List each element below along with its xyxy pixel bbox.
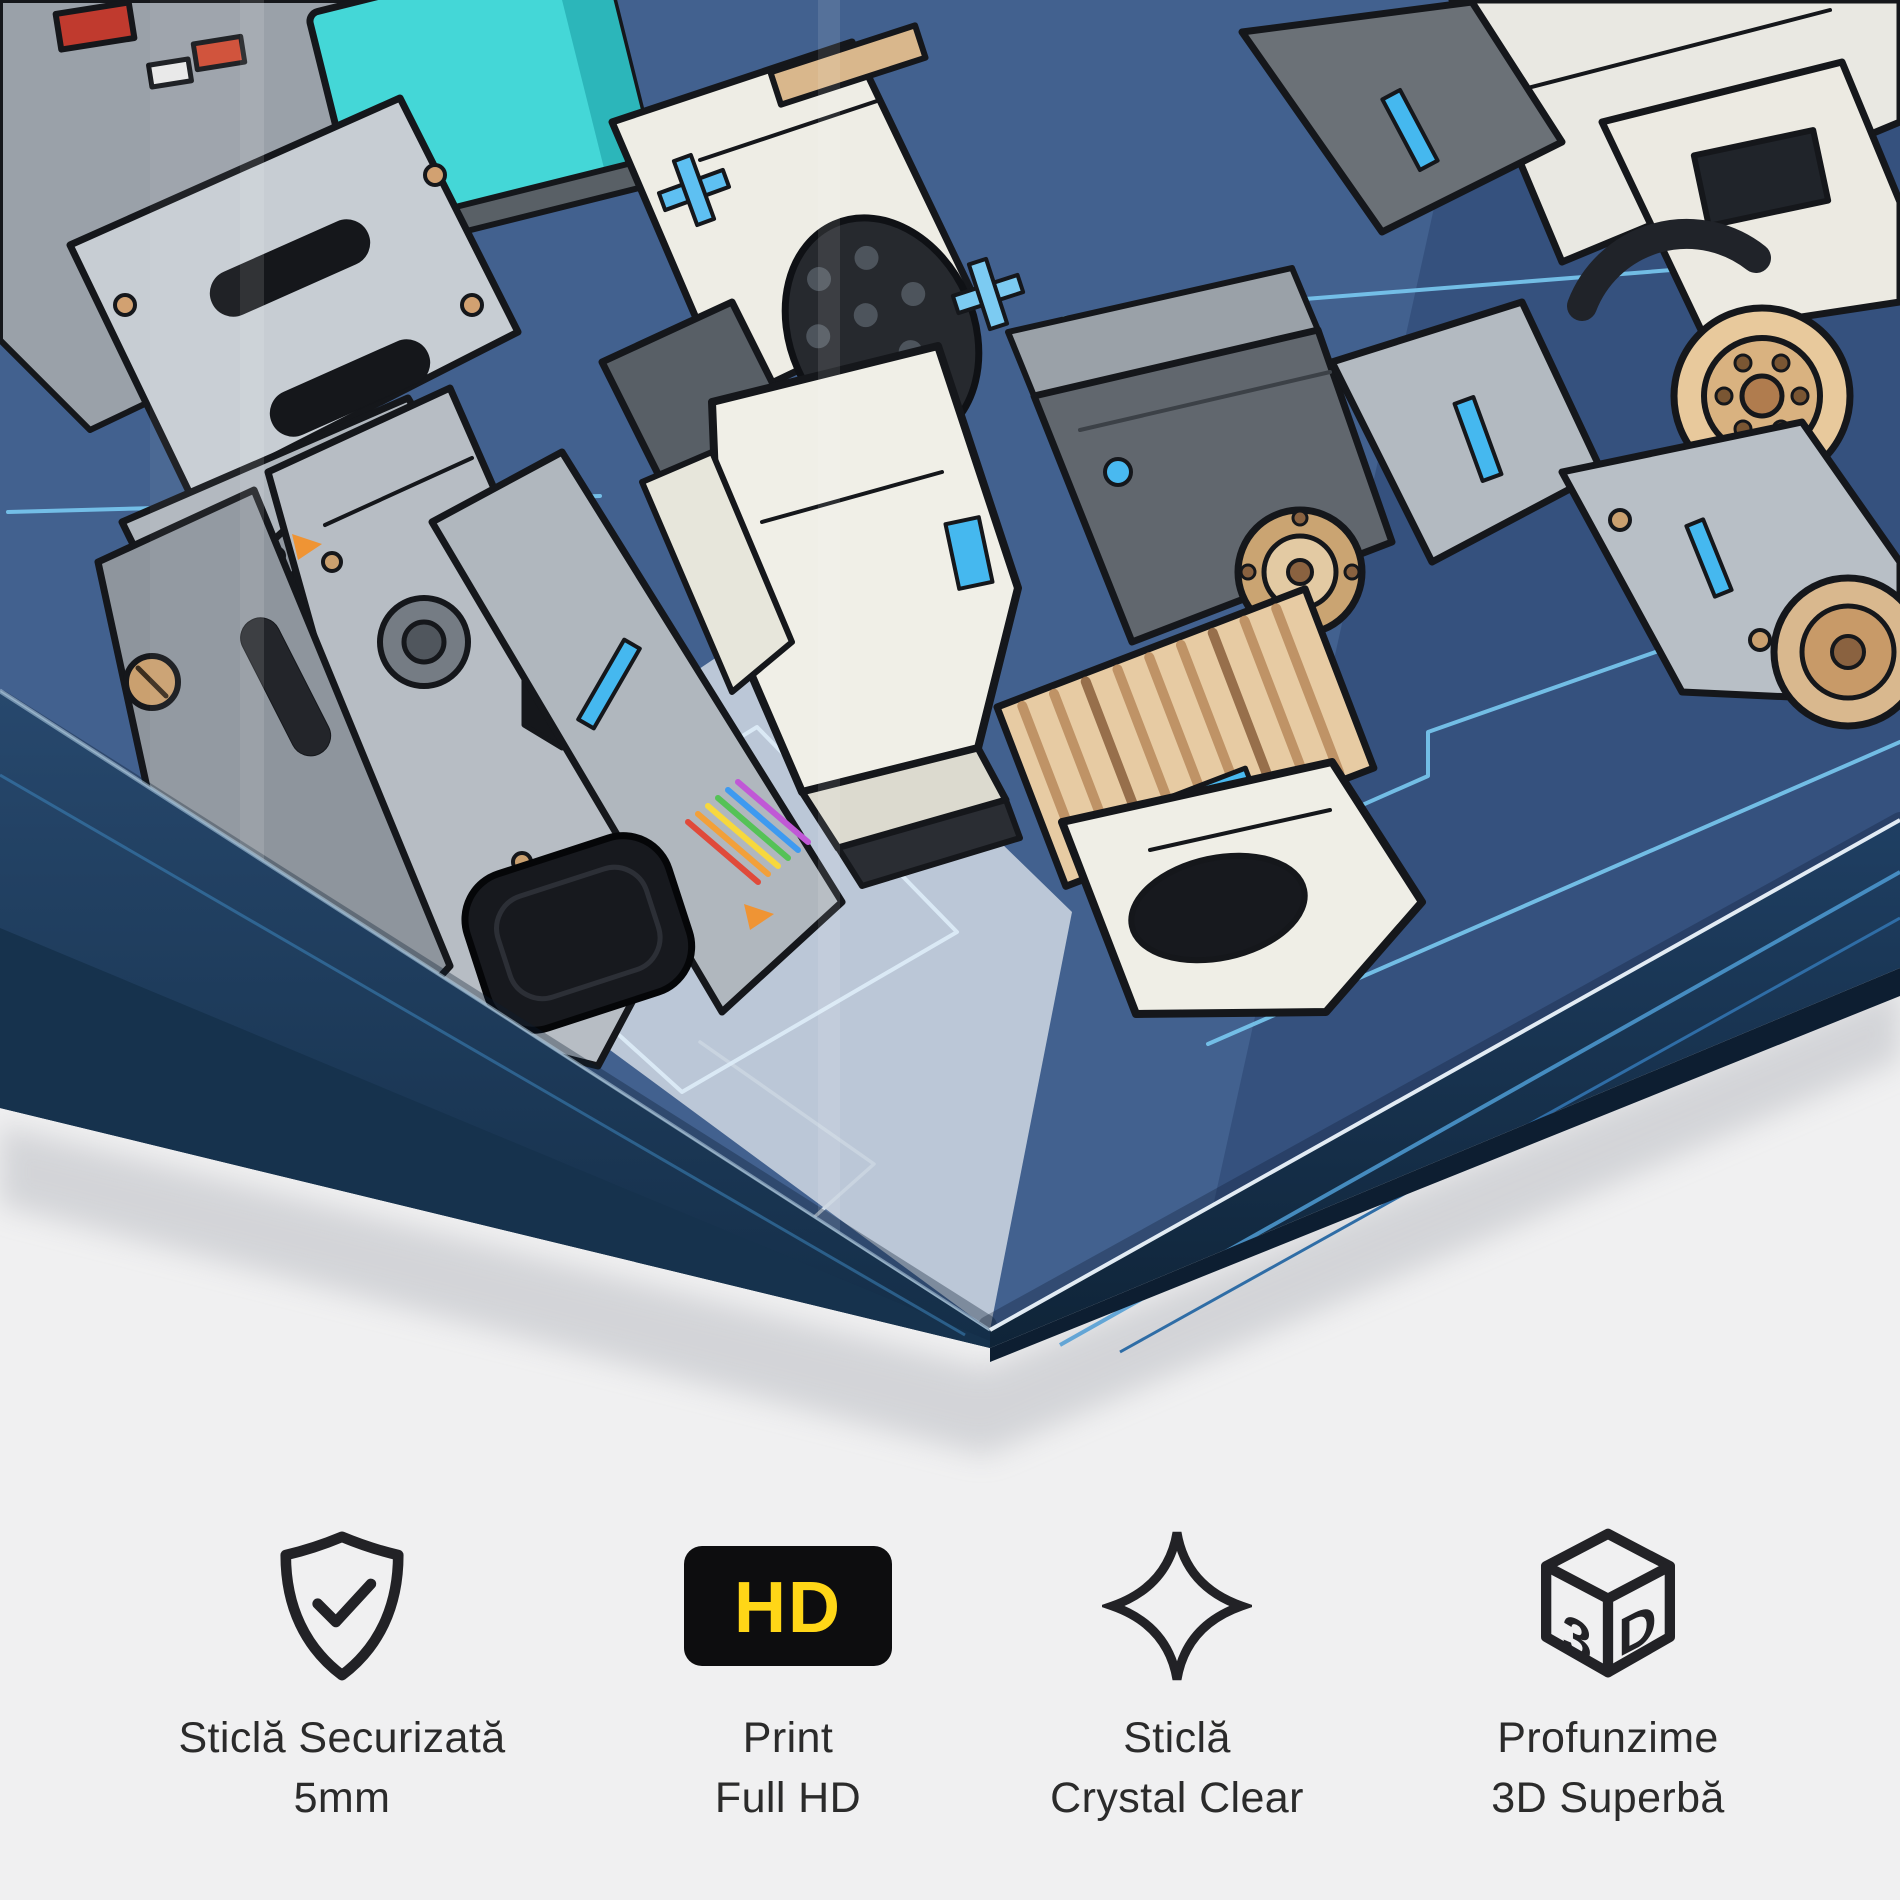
glass-panel-artwork (0, 0, 1900, 1900)
product-showcase: Sticlă Securizată 5mm HD Print Full HD S… (0, 0, 1900, 1900)
